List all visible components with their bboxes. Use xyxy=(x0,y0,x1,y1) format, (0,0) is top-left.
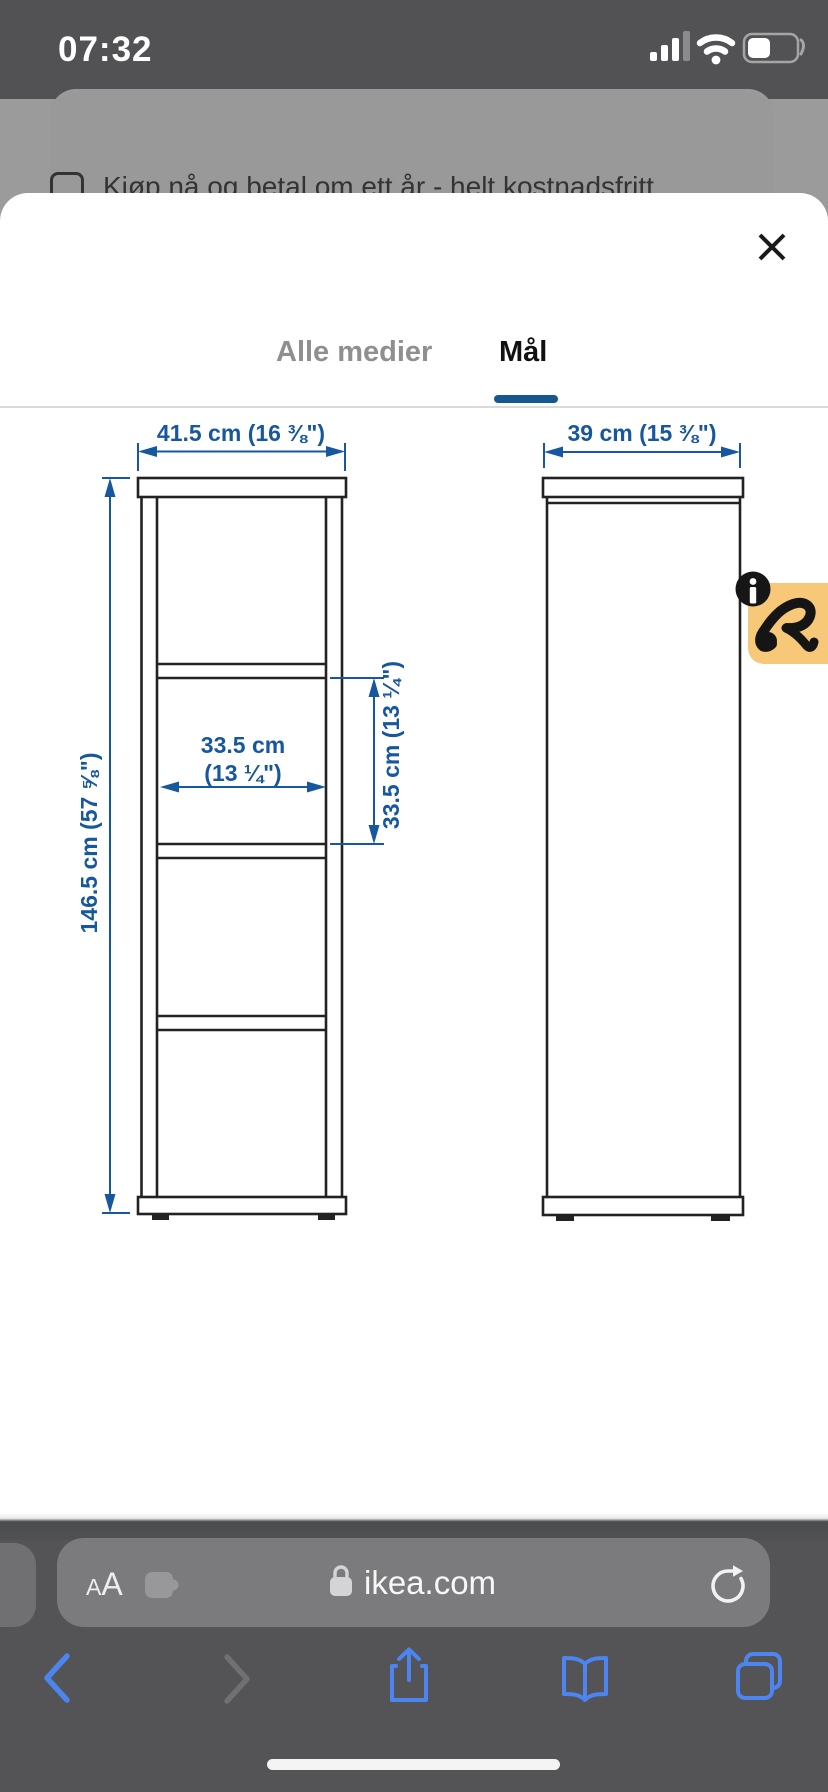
svg-text:33.5 cm: 33.5 cm xyxy=(201,732,285,758)
svg-text:41.5 cm (16 ⅜"): 41.5 cm (16 ⅜") xyxy=(157,420,325,446)
svg-text:(13 ¼"): (13 ¼") xyxy=(204,760,281,786)
svg-text:39 cm (15 ⅜"): 39 cm (15 ⅜") xyxy=(568,420,717,446)
svg-text:33.5 cm (13 ¼"): 33.5 cm (13 ¼") xyxy=(378,661,404,829)
svg-text:146.5 cm (57 ⅝"): 146.5 cm (57 ⅝") xyxy=(76,753,102,934)
